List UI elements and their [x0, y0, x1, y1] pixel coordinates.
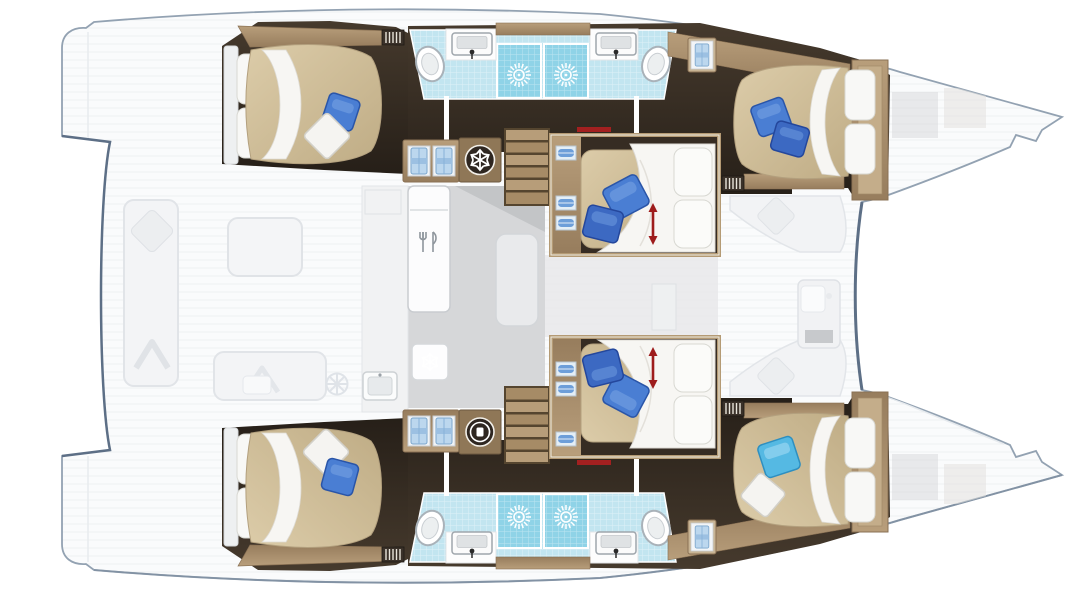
sink-icon: [452, 33, 492, 59]
fridge-snowflake-icon: [466, 146, 495, 175]
nav-desk-ghost: [798, 280, 840, 348]
galley-island: [496, 234, 538, 326]
galley-sink: [363, 372, 397, 400]
cockpit-table: [228, 218, 302, 276]
galley-freezer-box: [412, 344, 448, 380]
sink-icon: [452, 532, 492, 558]
catamaran-floor-plan: [0, 0, 1090, 592]
saloon-floor-strip: [545, 255, 718, 337]
floor-plan-canvas: [0, 0, 1090, 592]
sink-icon: [596, 33, 636, 59]
saloon-door-ghost: [652, 284, 676, 330]
sink-icon: [596, 532, 636, 558]
helm-wheel-icon: [327, 374, 348, 395]
washing-machine-icon: [466, 418, 494, 446]
aft-cockpit-bench: [124, 200, 178, 386]
aft-bench-lower: [214, 352, 326, 400]
galley-fridge: [408, 186, 450, 312]
